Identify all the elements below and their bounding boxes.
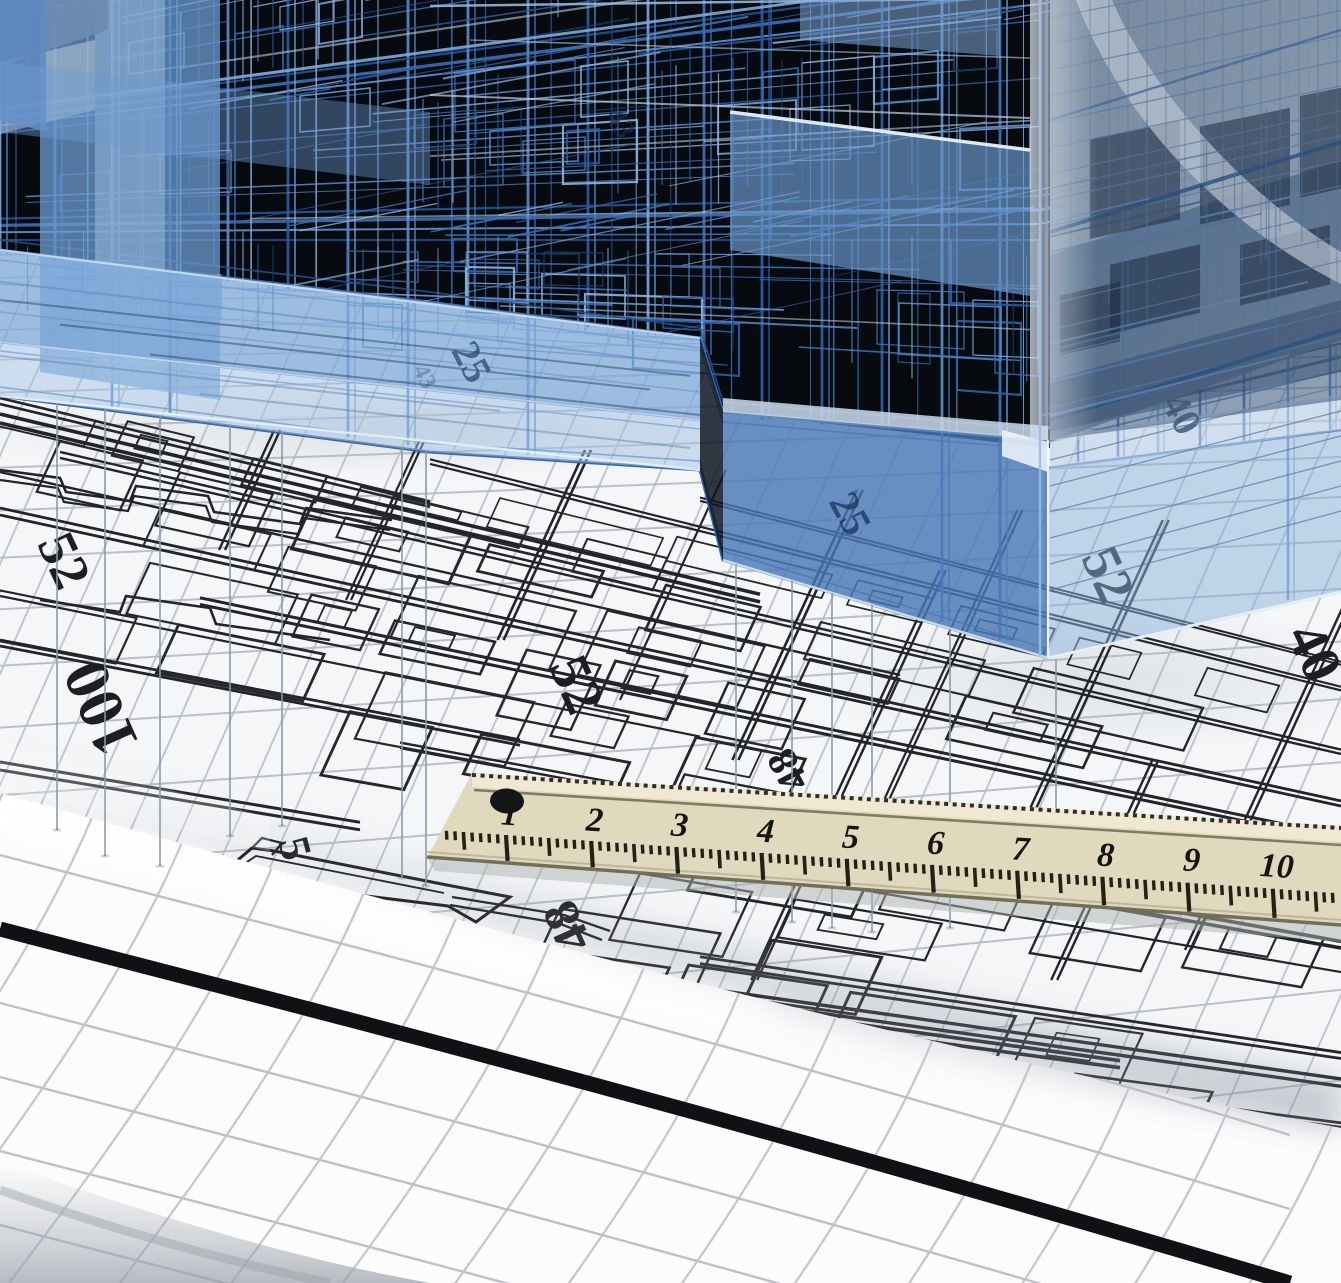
svg-text:6: 6 xyxy=(926,824,946,862)
svg-text:8: 8 xyxy=(1096,836,1116,874)
svg-text:5: 5 xyxy=(841,818,861,856)
svg-text:9: 9 xyxy=(1182,841,1202,879)
svg-text:3: 3 xyxy=(669,806,690,844)
svg-text:2: 2 xyxy=(584,801,605,839)
svg-text:4: 4 xyxy=(755,812,776,850)
svg-text:1: 1 xyxy=(500,795,520,833)
svg-text:10: 10 xyxy=(1258,847,1294,886)
